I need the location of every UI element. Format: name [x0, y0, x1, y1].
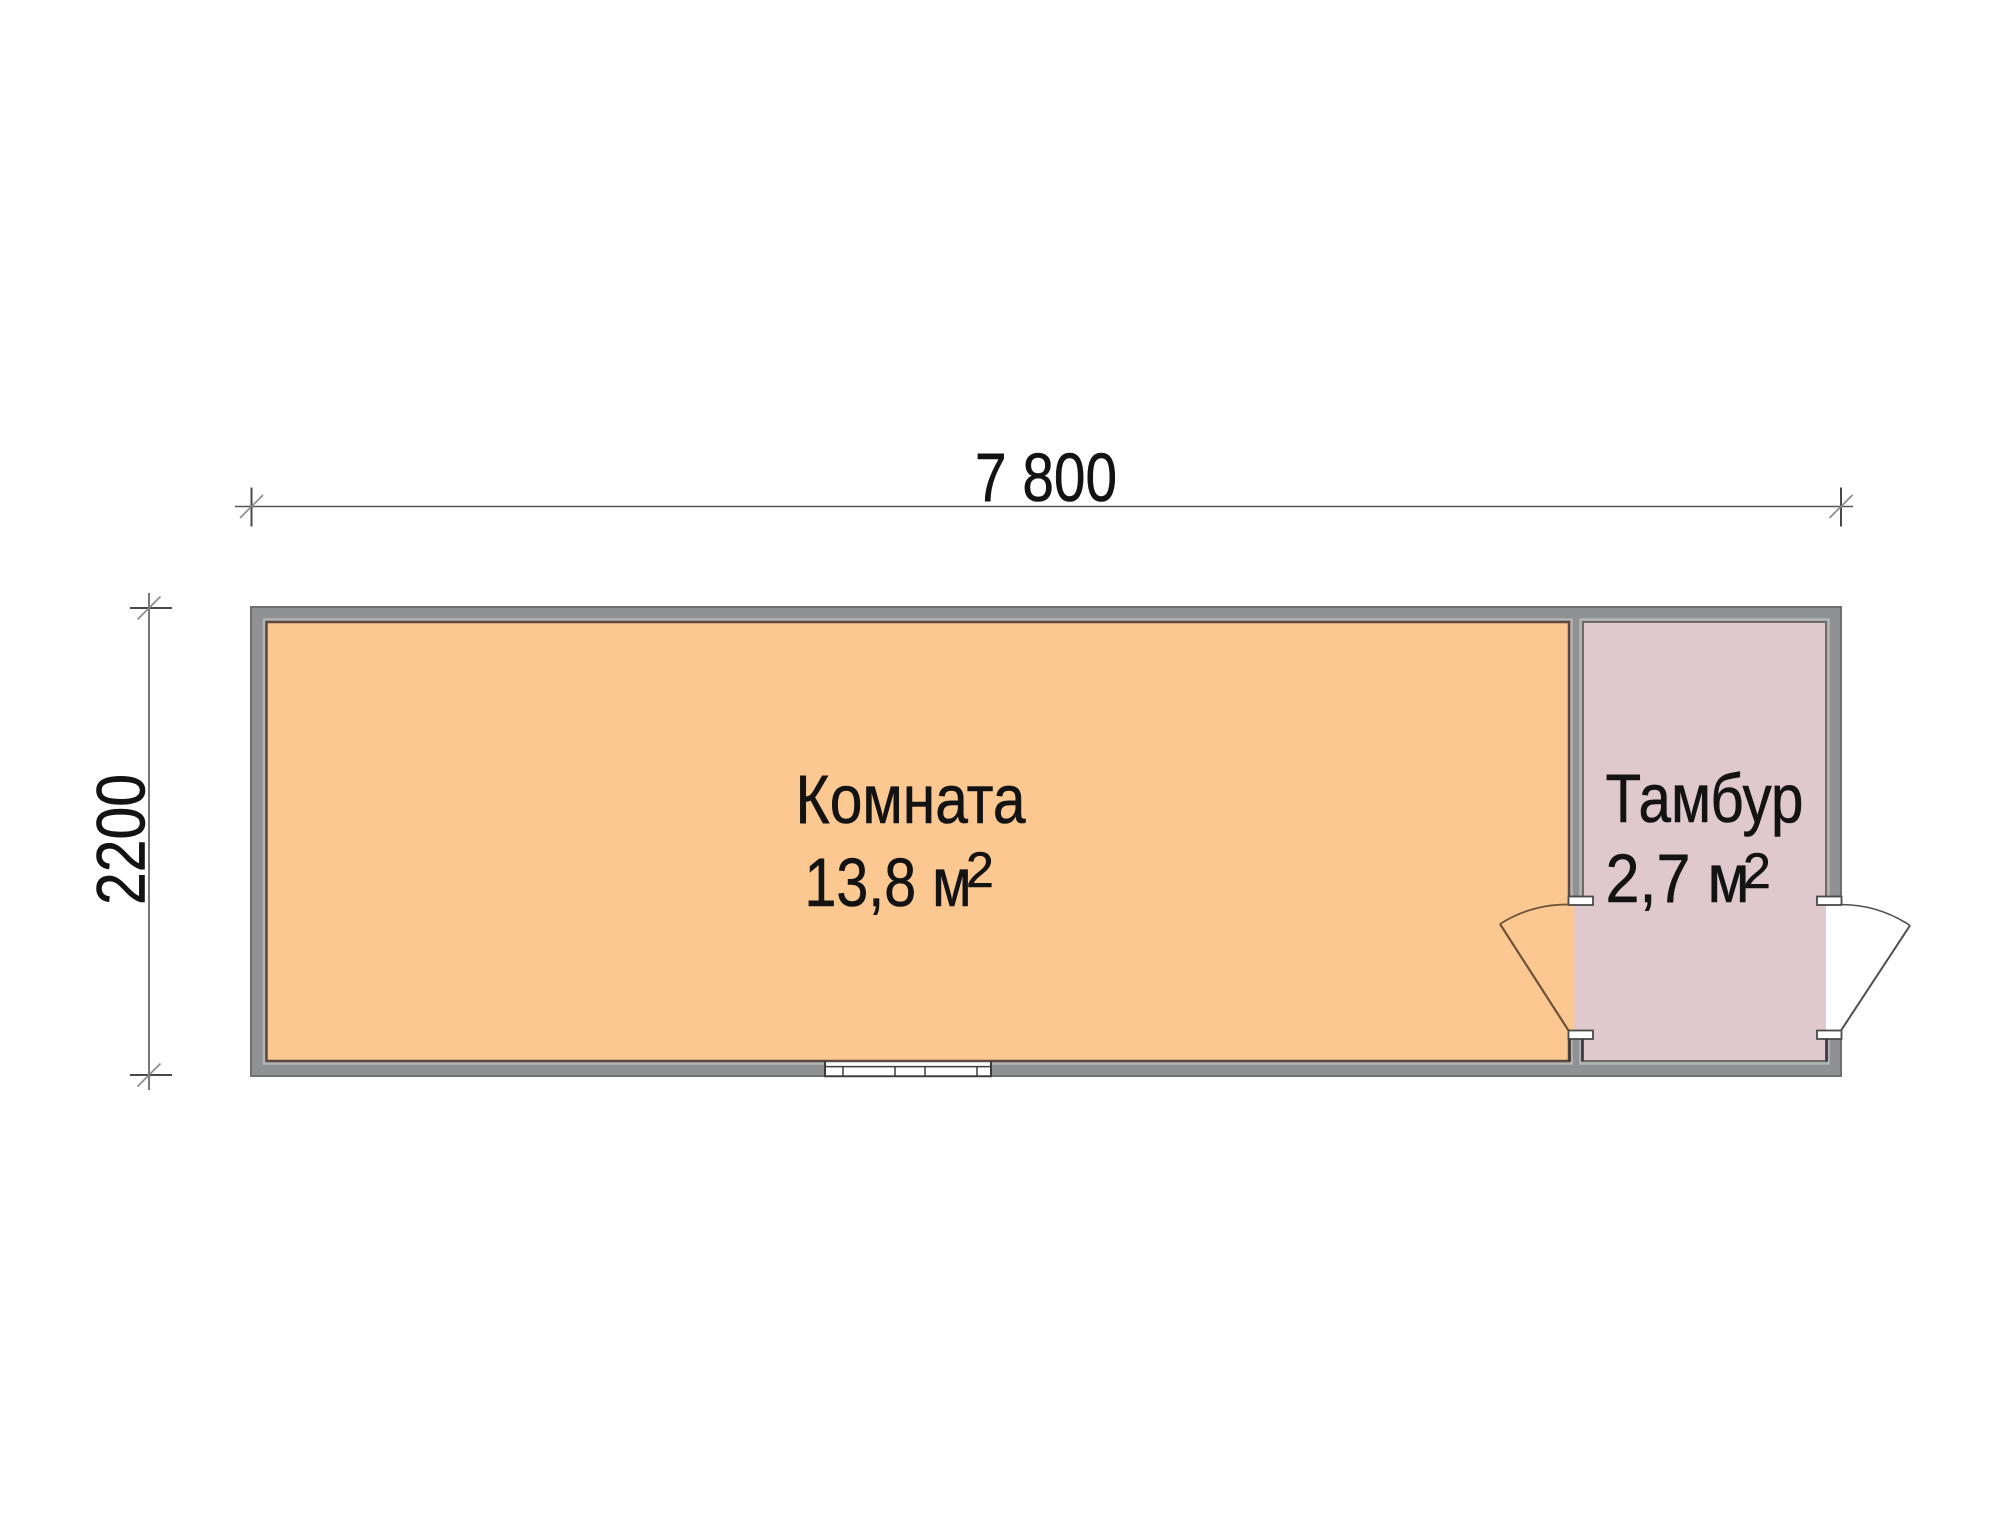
svg-text:2200: 2200 [83, 774, 160, 905]
svg-text:Тамбур: Тамбур [1606, 760, 1804, 837]
svg-text:2: 2 [966, 842, 994, 898]
svg-text:7 800: 7 800 [975, 439, 1117, 516]
svg-text:13,8 м: 13,8 м [805, 844, 972, 921]
svg-text:2,7 м: 2,7 м [1606, 840, 1750, 917]
svg-text:2: 2 [1743, 843, 1771, 899]
svg-text:Комната: Комната [796, 761, 1027, 838]
